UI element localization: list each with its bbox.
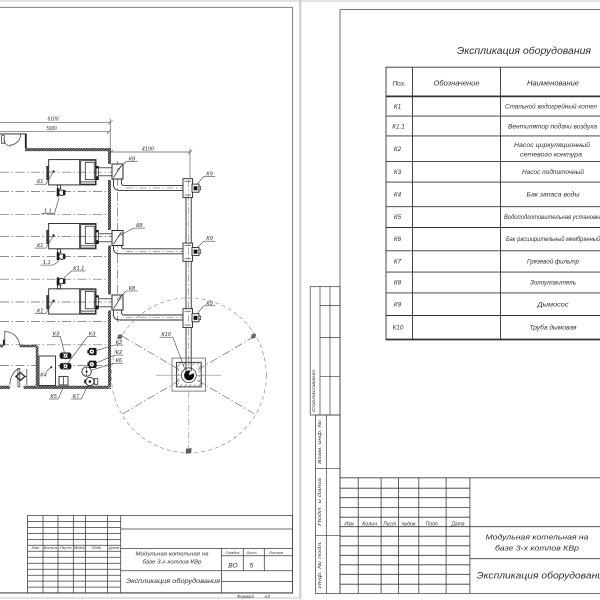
svg-text:К6: К6 [394,236,402,243]
svg-text:К5: К5 [394,214,402,221]
svg-text:Изм: Изм [31,545,39,550]
svg-text:Обозначение: Обозначение [434,79,480,87]
svg-text:Дата: Дата [108,545,120,550]
svg-text:К8: К8 [129,286,136,292]
svg-text:Труба дымовая: Труба дымовая [530,324,577,332]
svg-text:Согласовано: Согласовано [311,369,316,412]
svg-text:К1: К1 [37,179,43,185]
svg-text:К9: К9 [206,171,212,177]
svg-text:К1: К1 [37,243,43,249]
svg-text:4100: 4100 [142,146,154,152]
svg-text:Лист: Лист [246,550,258,555]
svg-text:базе 3-х котлов КВр: базе 3-х котлов КВр [143,560,202,566]
svg-text:А3: А3 [263,594,270,599]
svg-text:базе 3-х котлов КВр: базе 3-х котлов КВр [495,544,579,553]
svg-text:1.1: 1.1 [43,260,51,266]
svg-text:Экспликация оборудования: Экспликация оборудования [477,571,600,582]
svg-text:К8: К8 [136,223,143,229]
svg-text:К2: К2 [116,340,123,346]
svg-text:К4: К4 [394,192,402,199]
svg-text:К8: К8 [129,157,136,163]
svg-text:6100: 6100 [48,117,59,123]
svg-text:Лист: Лист [382,521,396,527]
svg-text:Колич: Колич [362,521,377,527]
svg-text:Взам. инф. №: Взам. инф. № [317,420,322,464]
svg-text:К3: К3 [53,332,60,338]
svg-text:Модульная котельная на: Модульная котельная на [486,533,589,542]
svg-text:Бак запаса воды: Бак запаса воды [527,191,580,199]
svg-text:Золоуловитель: Золоуловитель [530,279,576,286]
svg-text:Экспликация оборудования: Экспликация оборудования [457,45,592,57]
svg-text:К10: К10 [393,325,404,332]
svg-text:Подп. и дата: Подп. и дата [317,477,322,526]
svg-text:Подп: Подп [92,545,102,550]
svg-text:Водоподготовительная установка: Водоподготовительная установка [504,213,600,221]
svg-text:№док: №док [74,545,86,550]
svg-text:К8: К8 [394,279,402,286]
svg-text:Поз.: Поз. [392,80,405,87]
svg-text:№док: №док [402,521,417,527]
svg-text:ВО: ВО [228,562,237,569]
svg-text:К9: К9 [206,236,212,242]
svg-text:К4: К4 [40,373,46,379]
svg-text:Изм: Изм [344,521,354,527]
svg-text:К5: К5 [50,394,57,400]
svg-text:Стальной водогрейный котел: Стальной водогрейный котел [505,103,597,111]
svg-text:К1.1: К1.1 [392,123,404,130]
svg-text:К2: К2 [394,146,402,153]
svg-text:К1.1: К1.1 [73,266,84,272]
svg-text:К1: К1 [37,308,43,314]
svg-text:Подп.: Подп. [426,521,439,527]
svg-text:Насос циркуляционный: Насос циркуляционный [514,141,590,149]
svg-text:Инф. № подл.: Инф. № подл. [317,541,322,589]
svg-text:1.1: 1.1 [44,209,52,215]
svg-text:Насос подпиточный: Насос подпиточный [522,168,584,176]
svg-text:Модульная котельная на: Модульная котельная на [136,552,209,558]
svg-text:Лист: Лист [58,545,72,550]
svg-text:Вентилятор подачи воздуха: Вентилятор подачи воздуха [508,122,597,130]
svg-text:К6: К6 [116,358,123,364]
svg-text:К9: К9 [394,301,402,308]
svg-text:Экспликация оборудования: Экспликация оборудования [126,579,221,585]
svg-text:К3: К3 [89,331,96,337]
svg-text:К3: К3 [394,169,402,176]
svg-text:сетевого контура: сетевого контура [520,151,582,158]
svg-text:Дымосос: Дымосос [536,301,569,308]
svg-text:Дата: Дата [450,521,464,527]
svg-text:Бак расширительный мембранный: Бак расширительный мембранный [506,235,600,243]
svg-text:5900: 5900 [46,126,57,132]
svg-text:Листов: Листов [268,550,283,555]
svg-text:5: 5 [250,562,254,569]
svg-text:К7: К7 [394,259,402,266]
svg-text:К7: К7 [73,394,80,400]
svg-text:К10: К10 [161,332,171,338]
svg-text:Формат: Формат [237,594,254,599]
svg-text:Стадия: Стадия [225,550,240,555]
svg-text:К9: К9 [206,301,212,307]
svg-text:Наименование: Наименование [527,80,579,87]
svg-text:Колич: Колич [44,545,58,550]
svg-text:Грязевой фильтр: Грязевой фильтр [527,258,579,266]
svg-text:К2: К2 [116,350,123,356]
svg-text:К1: К1 [394,104,401,111]
